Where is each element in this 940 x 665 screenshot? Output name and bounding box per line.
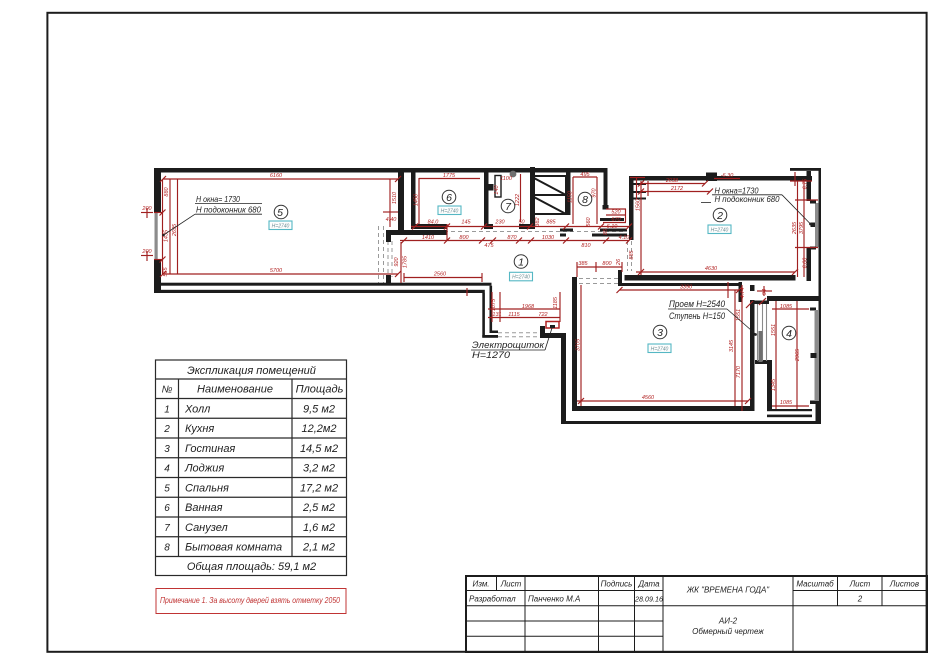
svg-text:1551: 1551: [771, 324, 777, 336]
svg-text:3390: 3390: [680, 285, 693, 291]
svg-text:Н подоконник 680: Н подоконник 680: [715, 195, 781, 204]
svg-text:8: 8: [582, 194, 588, 206]
svg-text:Экспликация помещений: Экспликация помещений: [187, 365, 316, 377]
svg-text:1450: 1450: [414, 193, 420, 206]
svg-text:1510: 1510: [392, 191, 398, 204]
svg-text:Лоджия: Лоджия: [184, 463, 224, 475]
svg-text:131: 131: [492, 312, 501, 318]
svg-text:Наименование: Наименование: [197, 384, 273, 396]
svg-text:1085: 1085: [780, 400, 793, 406]
svg-text:885: 885: [546, 220, 556, 226]
svg-text:Общая площадь: 59,1 м2: Общая площадь: 59,1 м2: [187, 561, 316, 573]
svg-text:1085: 1085: [780, 304, 793, 310]
svg-text:Лист: Лист: [500, 580, 522, 589]
svg-text:Ванная: Ванная: [185, 502, 223, 514]
svg-text:382: 382: [535, 217, 541, 226]
svg-text:722: 722: [538, 312, 547, 318]
svg-text:2172: 2172: [670, 186, 683, 192]
svg-text:Электрощиток: Электрощиток: [472, 340, 545, 350]
svg-text:9,5 м2: 9,5 м2: [303, 403, 335, 415]
svg-text:140: 140: [494, 184, 500, 194]
svg-text:565: 565: [163, 266, 169, 276]
svg-text:Спальня: Спальня: [185, 482, 229, 494]
svg-text:№: №: [162, 385, 173, 396]
svg-text:7170: 7170: [736, 365, 742, 378]
svg-text:12,2м2: 12,2м2: [301, 423, 336, 435]
svg-text:1030: 1030: [542, 235, 555, 241]
svg-text:1: 1: [164, 404, 170, 415]
svg-text:1222: 1222: [515, 194, 521, 206]
svg-text:Ступень Н=150: Ступень Н=150: [669, 311, 725, 321]
svg-text:50: 50: [518, 220, 525, 226]
svg-text:1560: 1560: [636, 198, 642, 211]
svg-text:Подпись: Подпись: [601, 580, 633, 589]
svg-text:Масштаб: Масштаб: [796, 580, 834, 589]
svg-text:6: 6: [164, 503, 170, 514]
svg-text:1100: 1100: [500, 176, 513, 182]
svg-text:Н окна= 1730: Н окна= 1730: [196, 195, 240, 204]
svg-text:385: 385: [578, 261, 588, 267]
svg-text:14,5 м2: 14,5 м2: [300, 443, 338, 455]
svg-text:230: 230: [494, 220, 505, 226]
svg-text:Проем Н=2540: Проем Н=2540: [669, 299, 725, 309]
svg-text:Листов: Листов: [889, 580, 919, 589]
svg-text:Санузел: Санузел: [185, 522, 228, 534]
svg-text:800: 800: [459, 235, 469, 241]
svg-text:Бытовая комната: Бытовая комната: [185, 542, 282, 554]
svg-text:3: 3: [164, 444, 170, 455]
svg-text:920: 920: [394, 256, 400, 266]
svg-text:1775: 1775: [443, 173, 456, 179]
svg-text:2,5 м2: 2,5 м2: [302, 502, 335, 514]
svg-text:2965: 2965: [795, 348, 801, 362]
svg-text:6: 6: [446, 192, 452, 204]
svg-text:6.00: 6.00: [803, 257, 809, 269]
svg-text:200: 200: [141, 249, 152, 255]
svg-text:3705: 3705: [576, 338, 582, 351]
svg-text:3795: 3795: [799, 221, 805, 234]
svg-text:H=2740: H=2740: [512, 275, 530, 281]
svg-text:670: 670: [611, 217, 621, 223]
svg-text:Разработал: Разработал: [469, 595, 516, 604]
svg-text:85: 85: [603, 228, 609, 235]
svg-text:Панченко М.А: Панченко М.А: [528, 595, 580, 604]
svg-text:26: 26: [616, 258, 622, 266]
svg-text:Дата: Дата: [637, 580, 660, 589]
svg-text:4: 4: [164, 464, 170, 475]
svg-text:1185: 1185: [553, 296, 559, 309]
svg-text:АИ-2: АИ-2: [718, 617, 738, 626]
svg-text:H=2740: H=2740: [651, 346, 669, 352]
svg-text:H=2740: H=2740: [441, 208, 459, 214]
svg-text:Н=1270: Н=1270: [472, 350, 510, 360]
svg-text:94: 94: [762, 289, 768, 295]
svg-text:1150: 1150: [568, 190, 574, 203]
svg-text:ЖК "ВРЕМЕНА ГОДА": ЖК "ВРЕМЕНА ГОДА": [686, 586, 770, 595]
svg-text:2: 2: [857, 595, 863, 604]
svg-text:970: 970: [592, 187, 598, 197]
svg-text:1,6 м2: 1,6 м2: [303, 522, 335, 534]
svg-text:2038: 2038: [665, 178, 679, 184]
svg-text:1968: 1968: [522, 304, 535, 310]
svg-text:Примечание 1. За высоту дверей: Примечание 1. За высоту дверей взять отм…: [160, 596, 340, 605]
svg-text:4560: 4560: [642, 395, 655, 401]
svg-text:1410: 1410: [422, 235, 435, 241]
svg-text:1345: 1345: [771, 378, 777, 391]
svg-text:8: 8: [164, 543, 170, 554]
svg-text:28.09.16: 28.09.16: [634, 595, 663, 604]
svg-text:3,2 м2: 3,2 м2: [303, 463, 335, 475]
svg-text:1115: 1115: [508, 312, 520, 318]
svg-text:Площадь: Площадь: [296, 384, 344, 396]
svg-text:1785: 1785: [403, 255, 409, 268]
svg-text:5700: 5700: [270, 268, 283, 274]
svg-text:145: 145: [461, 220, 471, 226]
svg-text:Изм.: Изм.: [472, 580, 489, 589]
svg-text:810: 810: [581, 243, 591, 249]
svg-text:4: 4: [786, 328, 792, 340]
svg-text:Кухня: Кухня: [185, 423, 214, 435]
svg-text:2635: 2635: [792, 221, 798, 235]
svg-text:17,2 м2: 17,2 м2: [300, 482, 338, 494]
svg-text:2,1 м2: 2,1 м2: [302, 542, 335, 554]
svg-text:4630: 4630: [705, 266, 718, 272]
svg-text:5: 5: [277, 207, 283, 219]
svg-text:H=2740: H=2740: [272, 223, 290, 229]
svg-text:6160: 6160: [270, 173, 283, 179]
svg-text:6.76: 6.76: [803, 178, 809, 190]
svg-text:Гостиная: Гостиная: [185, 443, 235, 455]
svg-text:870: 870: [507, 235, 517, 241]
svg-text:2: 2: [163, 424, 170, 435]
svg-text:7: 7: [164, 523, 170, 534]
svg-text:4.40: 4.40: [386, 217, 398, 223]
svg-text:1075: 1075: [491, 298, 497, 311]
svg-text:Н подоконник 680: Н подоконник 680: [196, 206, 262, 215]
svg-text:800: 800: [602, 261, 612, 267]
svg-text:4.10: 4.10: [619, 235, 631, 241]
svg-text:885: 885: [629, 249, 635, 259]
svg-text:880: 880: [164, 186, 170, 196]
svg-text:520: 520: [611, 210, 621, 216]
svg-text:475: 475: [484, 243, 494, 249]
svg-text:1: 1: [518, 257, 524, 269]
svg-text:5: 5: [164, 483, 170, 494]
svg-text:3: 3: [657, 327, 663, 339]
svg-text:84.0: 84.0: [428, 220, 440, 226]
svg-text:3145: 3145: [729, 339, 735, 352]
svg-text:200: 200: [141, 206, 152, 212]
svg-text:H=2740: H=2740: [711, 227, 729, 233]
svg-text:2560: 2560: [433, 272, 447, 278]
svg-text:560: 560: [586, 216, 592, 226]
svg-text:495: 495: [580, 172, 590, 178]
svg-text:Лист: Лист: [849, 580, 871, 589]
svg-text:4.74: 4.74: [740, 288, 746, 299]
svg-text:2: 2: [716, 210, 723, 222]
svg-text:2695: 2695: [172, 223, 178, 237]
svg-text:-6.30: -6.30: [721, 173, 734, 179]
svg-text:Обмерный чертеж: Обмерный чертеж: [692, 627, 764, 636]
svg-text:Холл: Холл: [184, 403, 210, 415]
